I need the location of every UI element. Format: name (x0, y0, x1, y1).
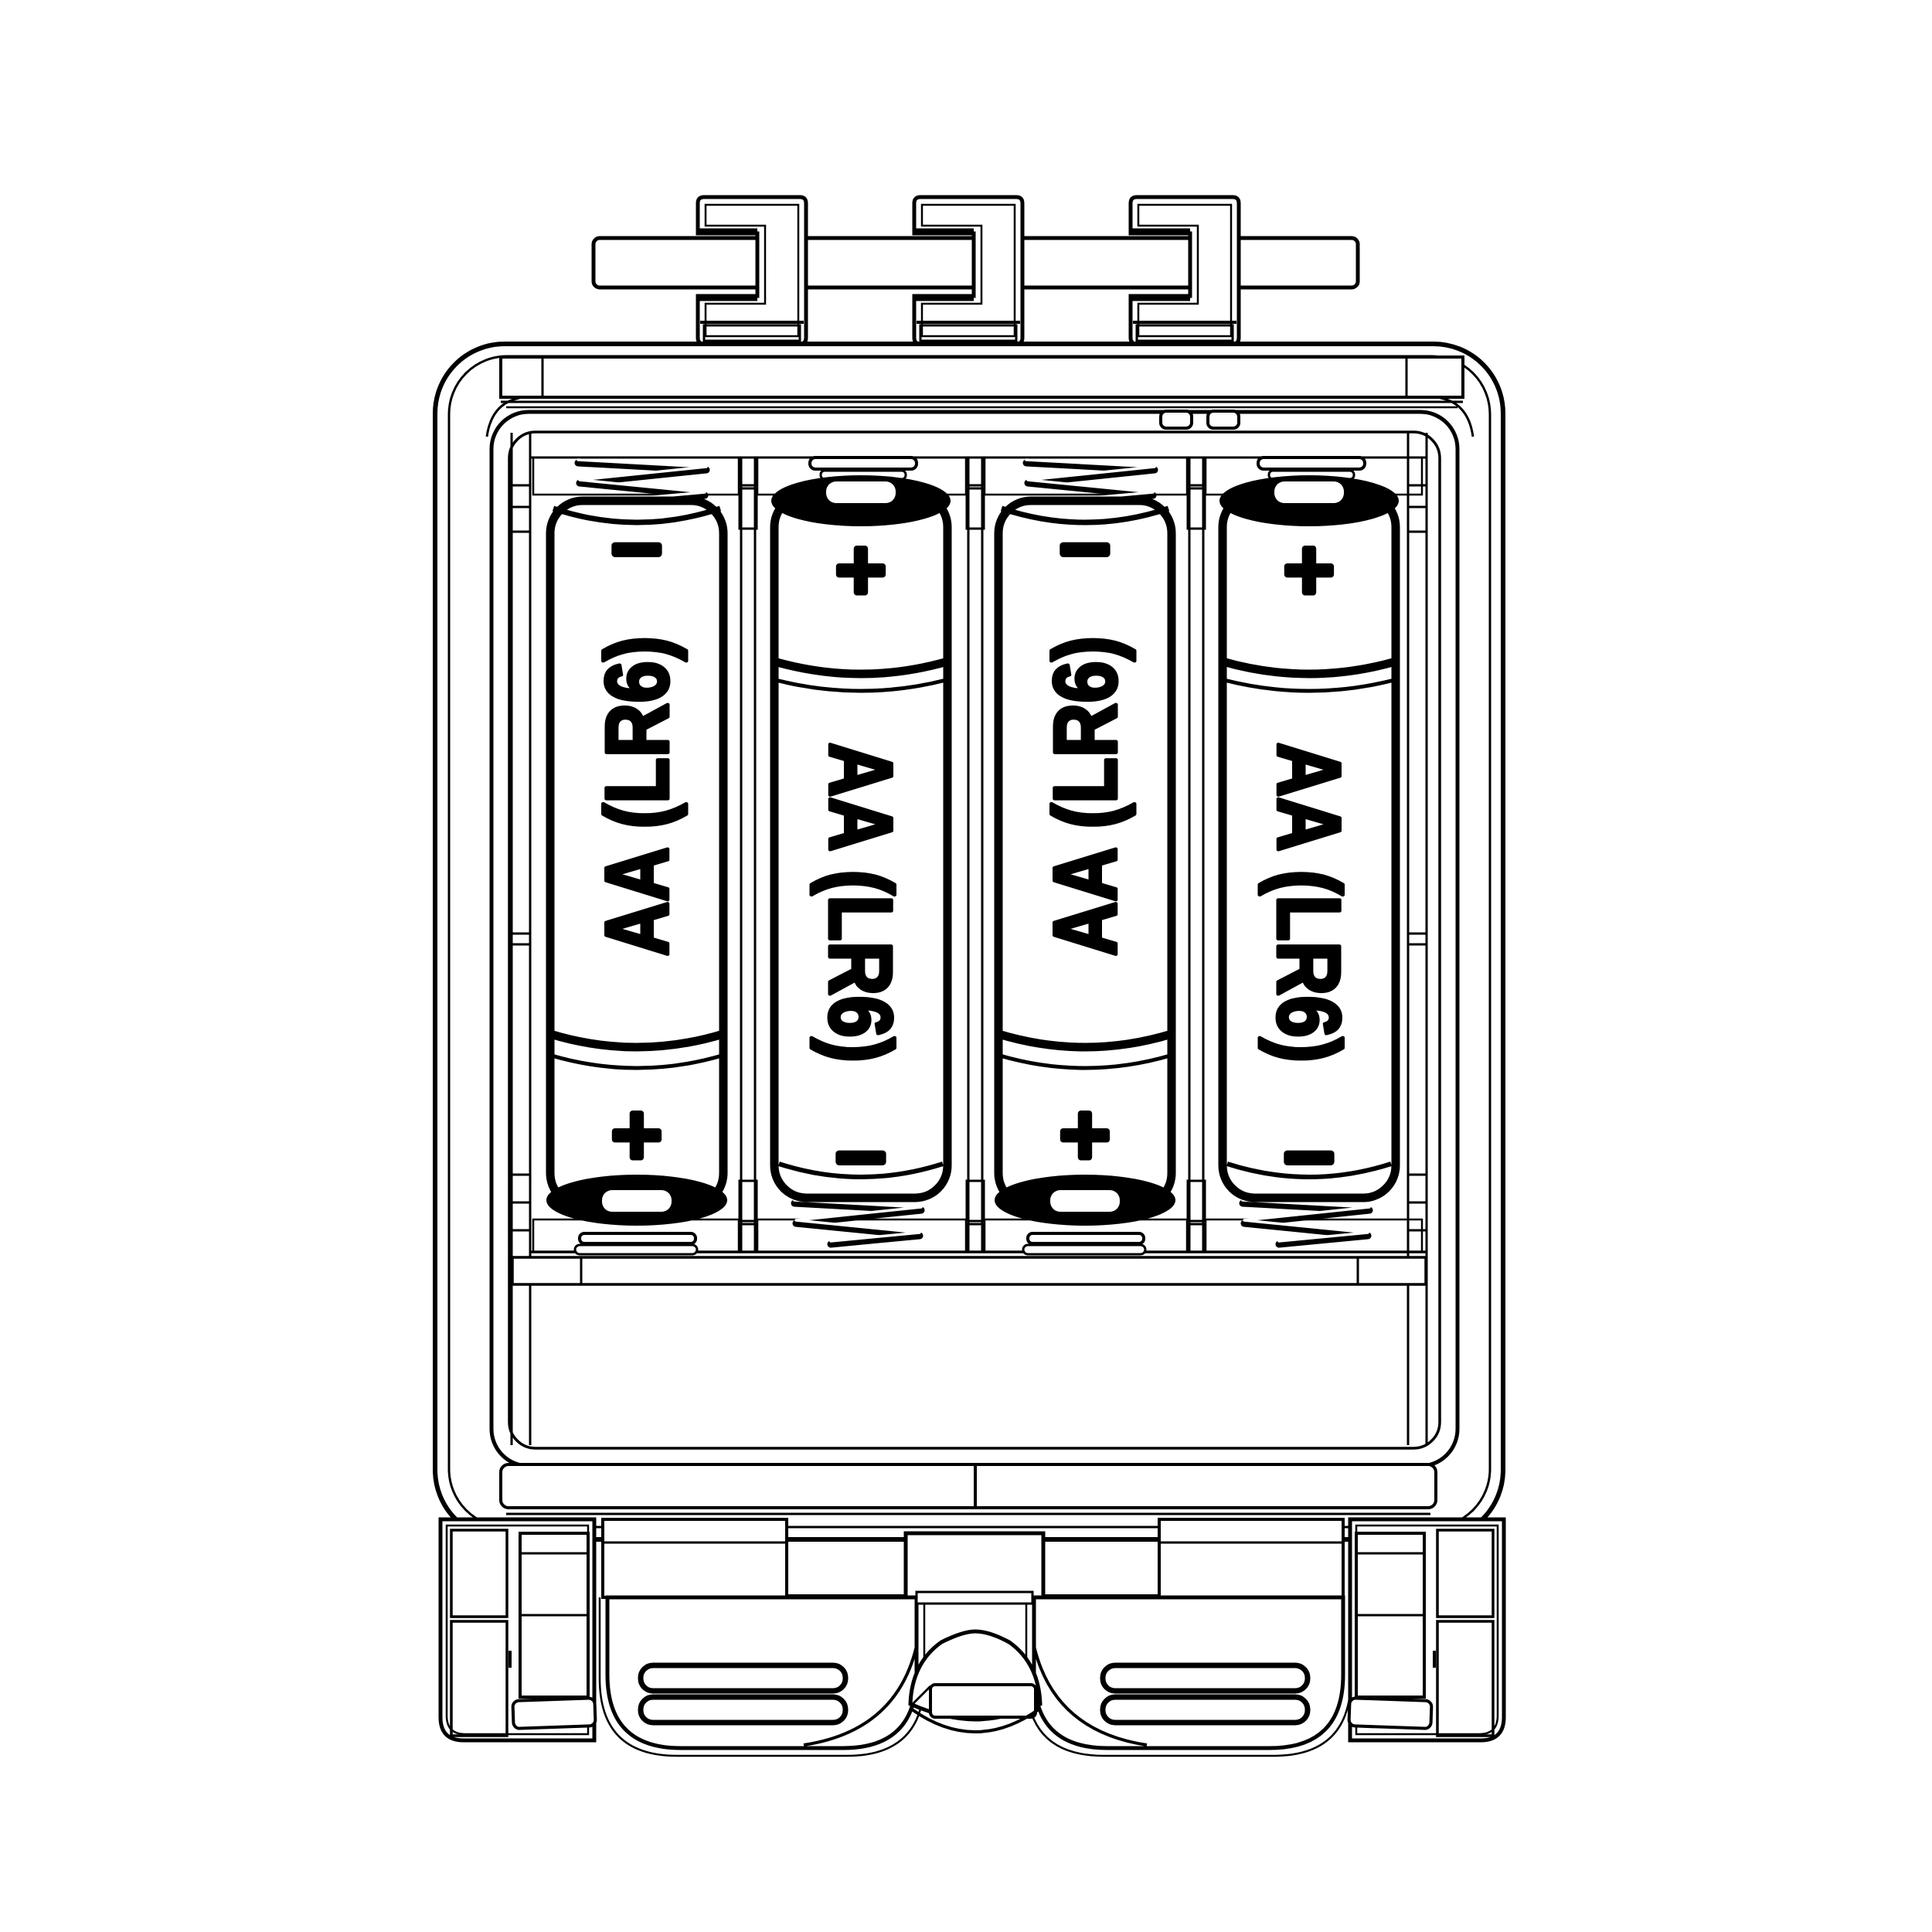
left-step-plate (603, 1519, 787, 1597)
negative-mark: − (1056, 508, 1114, 589)
plate-lower (1023, 1245, 1145, 1254)
latch-tongue-face (930, 1685, 1036, 1717)
bottom-latch-assembly (440, 1519, 1504, 1756)
positive-mark: + (1280, 529, 1338, 610)
grip-slot (1103, 1697, 1308, 1723)
terminal-highlight (1274, 481, 1344, 503)
battery-label: AA (LR6) (587, 636, 686, 956)
negative-mark: − (1280, 1116, 1338, 1197)
terminal-highlight (1050, 1190, 1120, 1212)
plate-upper (810, 457, 917, 469)
negative-mark: − (607, 508, 665, 589)
alignment-tab-1 (1161, 411, 1192, 428)
positive-mark: + (832, 529, 889, 610)
grip-slot (641, 1697, 845, 1723)
battery-compartment-diagram: − AA (LR6) + + AA (LR6) − − AA (LR6) + + (0, 0, 1932, 1932)
right-bracket (1349, 1519, 1504, 1740)
positive-mark: + (1056, 1094, 1114, 1175)
terminal-highlight (602, 1190, 672, 1212)
battery-2: + AA (LR6) − (771, 475, 951, 1198)
below-slot-band (512, 1257, 1426, 1284)
battery-label: AA (LR6) (1035, 636, 1134, 956)
alignment-tab-2 (1208, 411, 1239, 428)
bottom-bar (501, 1464, 1436, 1508)
plate-upper (580, 1233, 696, 1243)
latch-anchor-bar (917, 1592, 1032, 1604)
battery-4: + AA (LR6) − (1219, 475, 1399, 1198)
battery-label: AA (LR6) (1259, 743, 1359, 1063)
plate-lower (575, 1245, 697, 1254)
latch-anchor-block (906, 1533, 1043, 1597)
battery-1: − AA (LR6) + (546, 501, 727, 1226)
grip-slot (641, 1665, 845, 1691)
bracket-foot (512, 1698, 595, 1729)
contact-plate-icon (575, 1233, 697, 1254)
battery-3: − AA (LR6) + (995, 501, 1175, 1226)
negative-mark: − (832, 1116, 889, 1197)
right-step-plate (1159, 1519, 1343, 1597)
plate-upper (1258, 457, 1365, 469)
bracket-foot (1349, 1698, 1431, 1729)
contact-plate-icon (1023, 1233, 1145, 1254)
left-bracket (440, 1519, 596, 1740)
grip-slot (1103, 1665, 1308, 1691)
top-band (501, 357, 1463, 397)
battery-label: AA (LR6) (811, 743, 910, 1063)
plate-upper (1028, 1233, 1144, 1243)
positive-mark: + (607, 1094, 665, 1175)
terminal-highlight (826, 481, 896, 503)
